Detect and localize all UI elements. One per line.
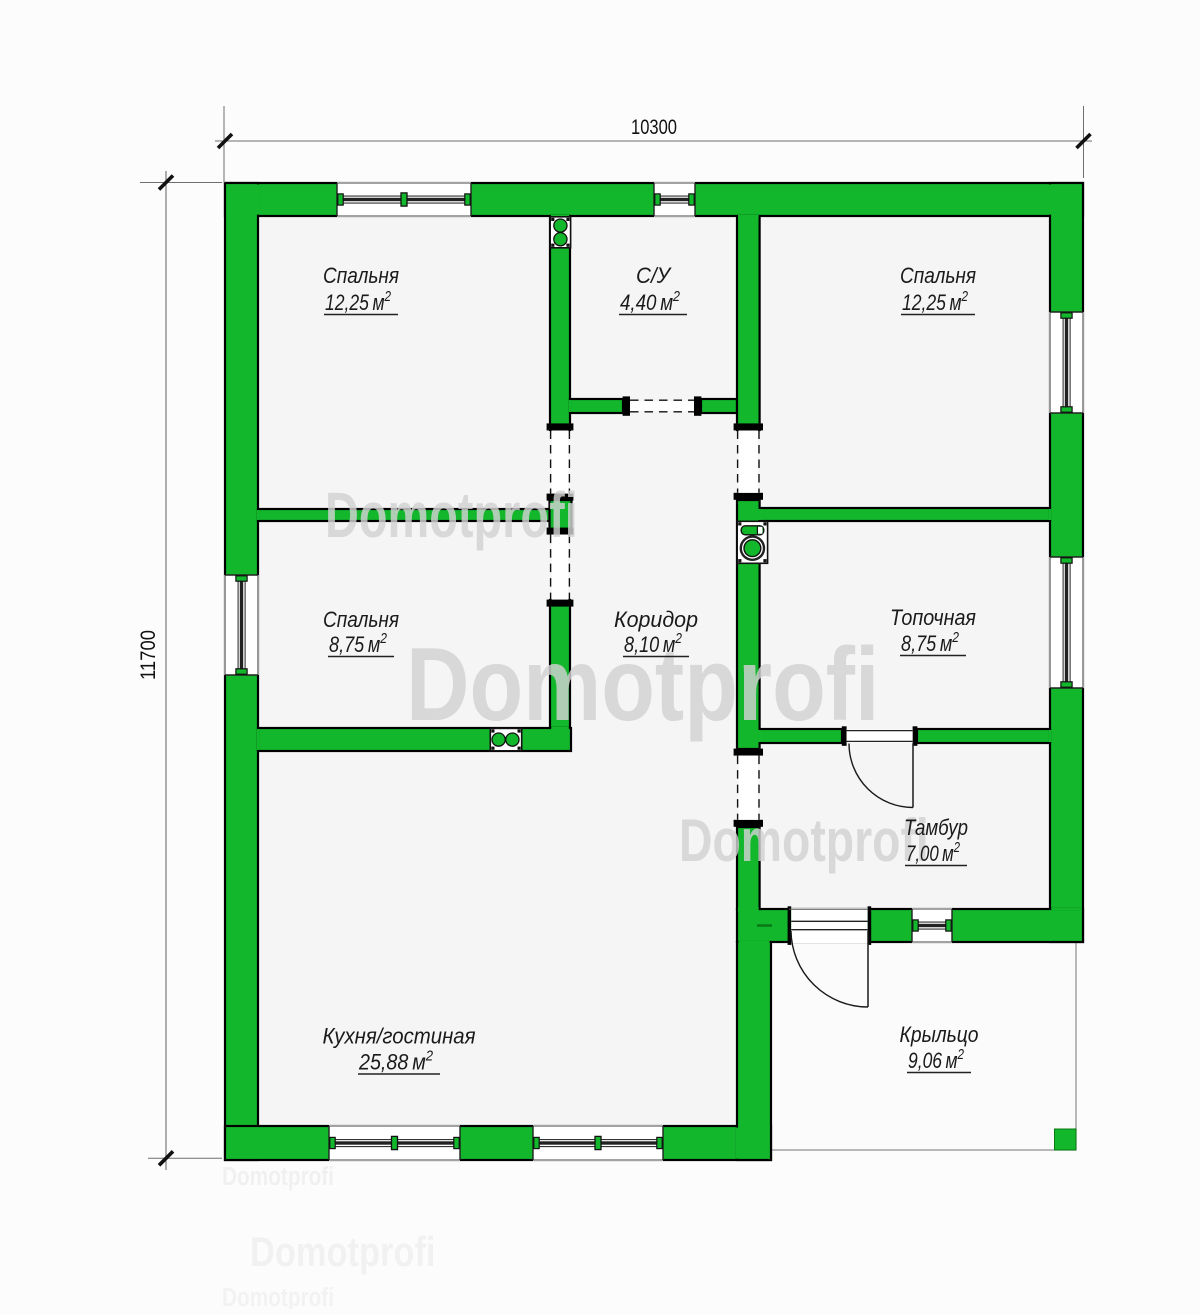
svg-text:С/У: С/У [636,263,672,288]
svg-text:Топочная: Топочная [890,605,976,630]
svg-text:25,88 м2: 25,88 м2 [358,1048,433,1075]
svg-text:8,75 м2: 8,75 м2 [901,629,960,656]
svg-text:Спальня: Спальня [323,263,399,288]
svg-text:9,06 м2: 9,06 м2 [908,1046,965,1073]
svg-text:4,40 м2: 4,40 м2 [620,288,681,315]
svg-text:Спальня: Спальня [323,607,399,632]
svg-text:Domotprofi: Domotprofi [679,807,929,874]
svg-text:Тамбур: Тамбур [904,815,968,840]
svg-text:Domotprofi: Domotprofi [250,1229,435,1276]
svg-text:Коридор: Коридор [614,607,698,632]
svg-text:8,10 м2: 8,10 м2 [624,630,683,657]
svg-text:Кухня/гостиная: Кухня/гостиная [323,1024,476,1049]
svg-text:Спальня: Спальня [900,263,976,288]
svg-text:8,75 м2: 8,75 м2 [329,630,388,657]
svg-text:11700: 11700 [136,630,160,680]
svg-text:12,25 м2: 12,25 м2 [902,288,969,315]
svg-text:12,25 м2: 12,25 м2 [325,288,392,315]
svg-text:Крыльцо: Крыльцо [900,1022,979,1047]
svg-text:7,00 м2: 7,00 м2 [906,839,960,866]
svg-text:10300: 10300 [631,115,677,139]
svg-text:Domotprofi: Domotprofi [222,1162,334,1191]
svg-text:Domotprofi: Domotprofi [325,479,578,551]
svg-text:Domotprofi: Domotprofi [222,1283,334,1309]
